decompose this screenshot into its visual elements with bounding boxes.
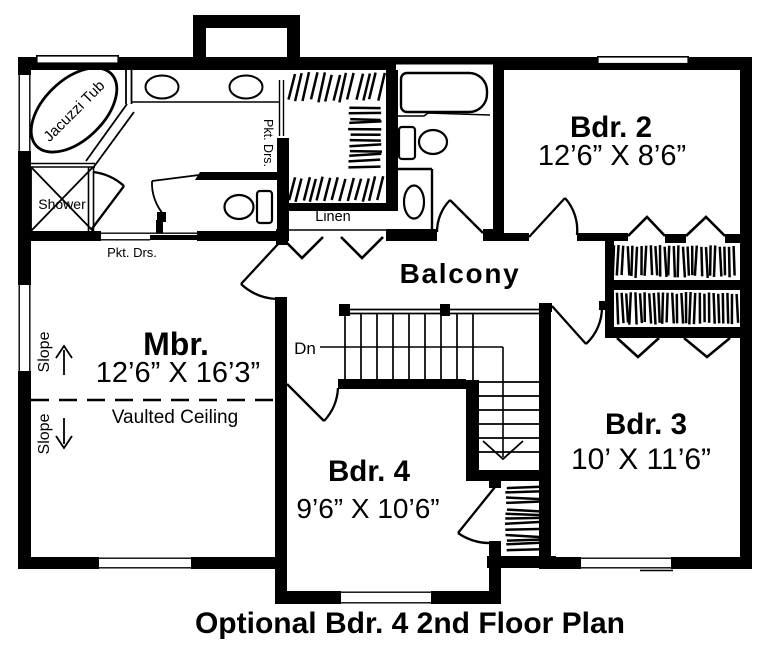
- svg-text:12’6” X 16’3”: 12’6” X 16’3”: [96, 357, 260, 389]
- svg-text:Dn: Dn: [294, 339, 316, 358]
- svg-text:Balcony: Balcony: [400, 258, 521, 289]
- svg-text:Vaulted Ceiling: Vaulted Ceiling: [112, 407, 238, 428]
- svg-text:Jacuzzi Tub: Jacuzzi Tub: [40, 77, 108, 145]
- svg-text:Pkt. Drs.: Pkt. Drs.: [261, 119, 275, 167]
- svg-text:Bdr. 4: Bdr. 4: [328, 455, 411, 488]
- svg-text:Bdr. 3: Bdr. 3: [605, 408, 687, 441]
- svg-text:10’ X 11’6”: 10’ X 11’6”: [571, 443, 711, 476]
- svg-text:9’6” X 10’6”: 9’6” X 10’6”: [296, 493, 439, 524]
- svg-text:12’6” X 8’6”: 12’6” X 8’6”: [538, 140, 686, 172]
- svg-text:Optional Bdr. 4 2nd Floor Plan: Optional Bdr. 4 2nd Floor Plan: [195, 607, 625, 640]
- svg-text:Shower: Shower: [38, 196, 86, 212]
- svg-text:Slope: Slope: [36, 413, 53, 454]
- svg-text:Slope: Slope: [36, 331, 53, 372]
- svg-text:Pkt. Drs.: Pkt. Drs.: [107, 245, 157, 260]
- svg-text:Linen: Linen: [315, 209, 350, 225]
